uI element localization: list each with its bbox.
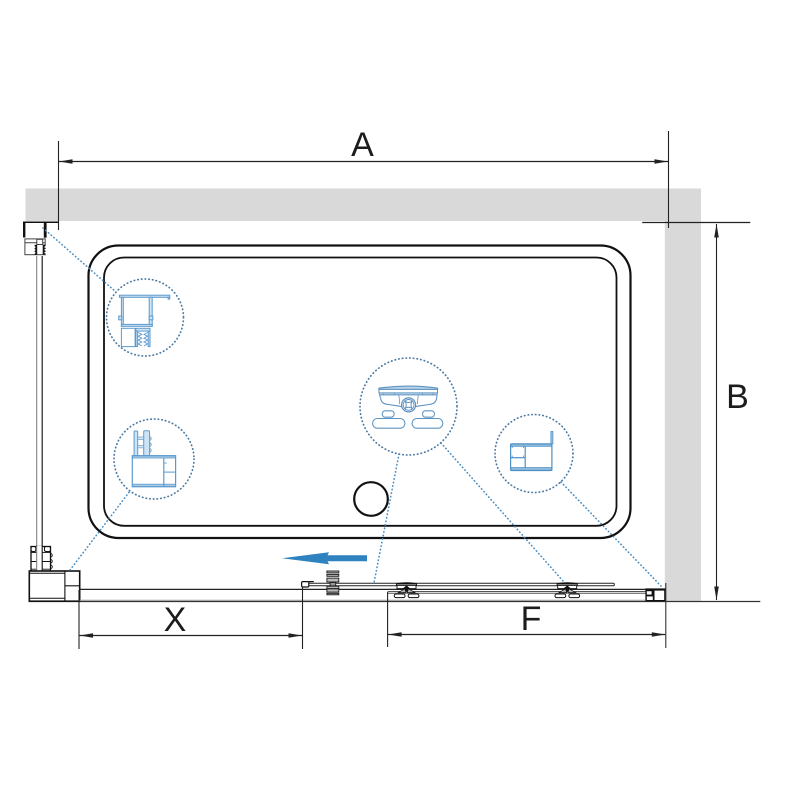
- svg-text:F: F: [521, 600, 542, 638]
- svg-text:X: X: [164, 601, 187, 639]
- svg-text:A: A: [351, 126, 374, 164]
- svg-text:B: B: [726, 378, 749, 416]
